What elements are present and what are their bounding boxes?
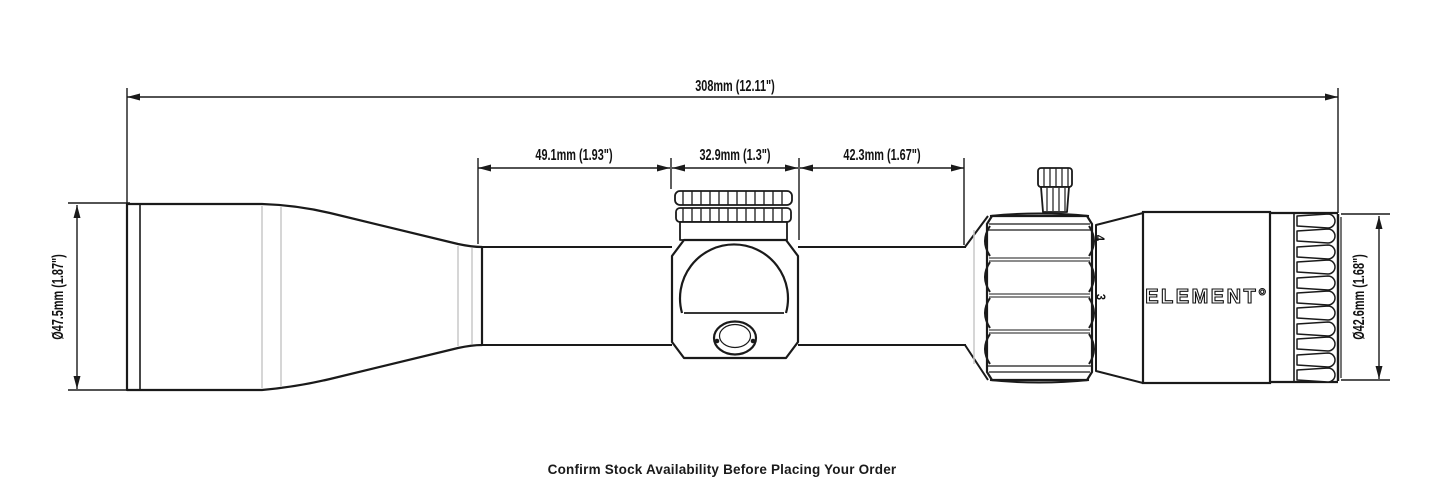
brand-logo: ELEMENT° [1145,286,1269,308]
magnification-mark-4: 4 [1093,235,1108,241]
side-cap [714,322,756,355]
dim-front-section-label: 49.1mm (1.93") [535,147,612,165]
elevation-turret-cap [675,191,792,240]
diopter-ring [1270,212,1341,383]
cap-screw-left [715,339,720,344]
stock-availability-note: Confirm Stock Availability Before Placin… [548,462,897,477]
magnification-mark-3: 3 [1094,294,1109,300]
objective-bell [127,204,482,390]
dim-rear-section-label: 42.3mm (1.67") [843,147,920,165]
dim-saddle-width-label: 32.9mm (1.3") [699,147,770,165]
zoom-ring [985,214,1094,383]
dim-objective-diameter-label: Ø47.5mm (1.87") [50,254,68,340]
cap-screw-right [751,339,756,344]
scope-line-drawing: ELEMENT° [0,0,1445,487]
eyecup-knurl-teeth [1297,214,1335,382]
dim-ocular-diameter-label: Ø42.6mm (1.68") [1351,254,1369,340]
throw-lever-knob [1038,168,1072,212]
dim-overall-length-label: 308mm (12.11") [695,78,775,96]
scope-dimension-diagram: ELEMENT° 308mm (12.11") 49.1mm (1.93") 3… [0,0,1445,487]
